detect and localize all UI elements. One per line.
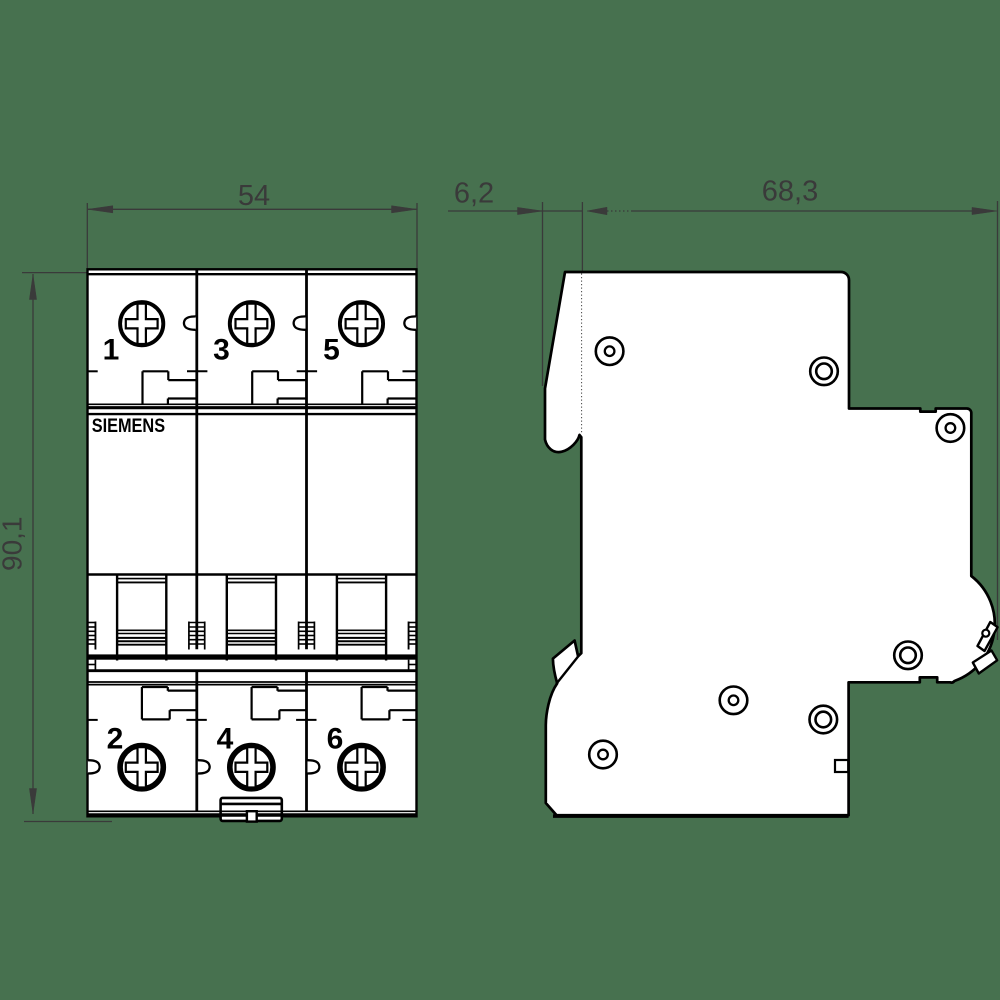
svg-text:1: 1: [103, 334, 120, 367]
svg-text:54: 54: [238, 180, 270, 212]
svg-text:2: 2: [107, 723, 124, 756]
svg-text:68,3: 68,3: [762, 176, 818, 208]
svg-text:6: 6: [327, 723, 344, 756]
svg-text:SIEMENS: SIEMENS: [92, 415, 165, 437]
svg-text:3: 3: [213, 334, 230, 367]
svg-text:5: 5: [323, 334, 340, 367]
svg-text:90,1: 90,1: [0, 517, 27, 572]
svg-text:6,2: 6,2: [454, 178, 494, 210]
svg-text:4: 4: [217, 723, 234, 756]
